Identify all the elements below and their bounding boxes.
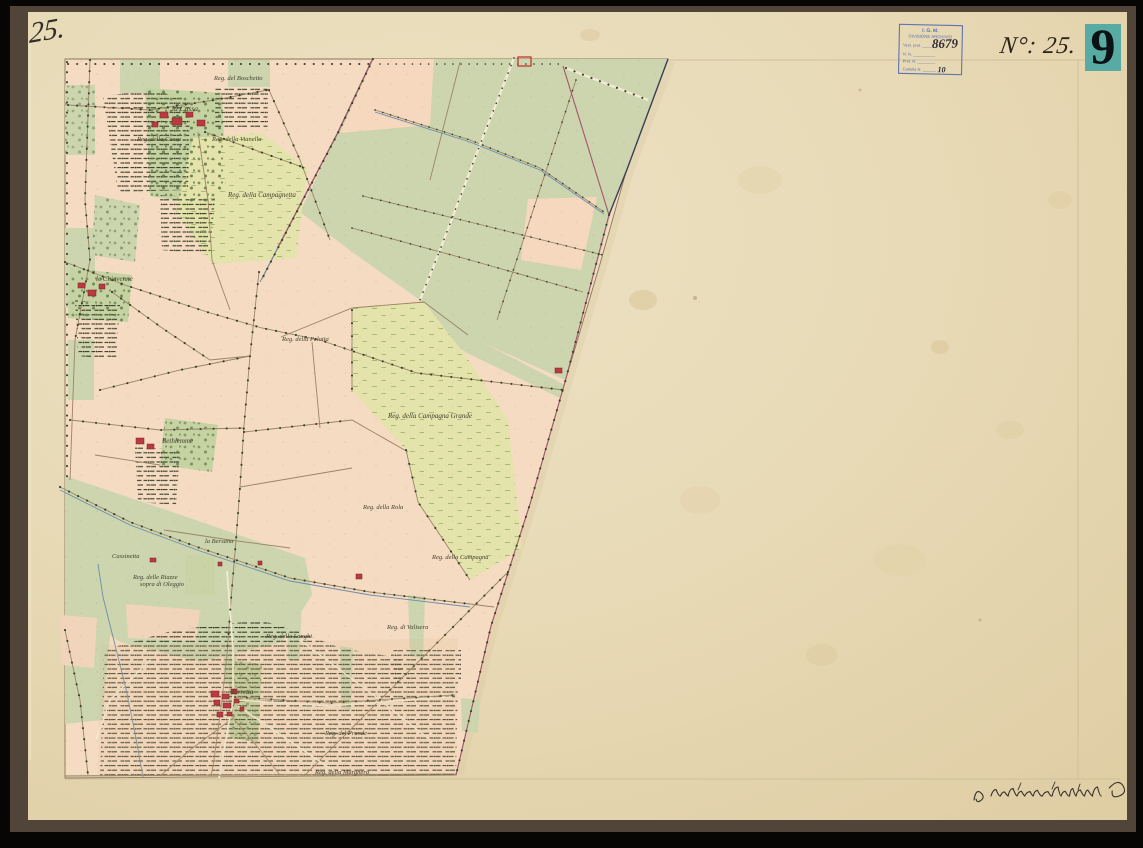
svg-text:Reg. della Cassa: Reg. della Cassa [136, 136, 181, 143]
svg-text:10: 10 [937, 65, 945, 74]
svg-text:sopra di Oleggio: sopra di Oleggio [140, 581, 185, 588]
svg-text:Reg. della Marghera: Reg. della Marghera [314, 769, 369, 776]
svg-text:Cartella N. ______: Cartella N. ______ [903, 66, 937, 72]
svg-text:Reg. della Campagnetta: Reg. della Campagnetta [227, 191, 296, 199]
svg-text:la Bersana: la Bersana [205, 538, 233, 545]
svg-text:Bethlemme: Bethlemme [162, 437, 193, 445]
svg-text:9: 9 [1091, 18, 1116, 74]
svg-text:le Chiavenne: le Chiavenne [96, 275, 133, 283]
svg-text:Torretta: Torretta [231, 688, 254, 696]
svg-text:8679: 8679 [932, 36, 959, 51]
svg-text:Reg. del Prande: Reg. del Prande [324, 730, 367, 737]
svg-text:Reg. delle Langhi: Reg. delle Langhi [265, 633, 312, 640]
svg-text:N°: 25.: N°: 25. [997, 32, 1079, 59]
svg-text:Reg. di Valisera: Reg. di Valisera [386, 624, 428, 631]
svg-text:Reg. delle Riazze: Reg. delle Riazze [132, 574, 178, 581]
svg-text:Cassinetta: Cassinetta [112, 553, 139, 560]
svg-text:la Cassa: la Cassa [172, 104, 198, 113]
svg-text:Reg. della Vianella: Reg. della Vianella [211, 136, 262, 143]
svg-text:Reg. della Campagna Grande: Reg. della Campagna Grande [387, 412, 472, 420]
svg-text:Prot. N. ________: Prot. N. ________ [903, 58, 936, 64]
svg-text:N. N. __________: N. N. __________ [903, 51, 936, 57]
svg-text:Reg. della Campagna: Reg. della Campagna [431, 554, 489, 561]
svg-text:Reg. della Pelotta: Reg. della Pelotta [281, 336, 329, 343]
svg-text:25.: 25. [29, 11, 66, 50]
svg-text:Reg. del Boschetto: Reg. del Boschetto [213, 75, 263, 82]
svg-text:Reg. della Rola: Reg. della Rola [362, 504, 403, 511]
